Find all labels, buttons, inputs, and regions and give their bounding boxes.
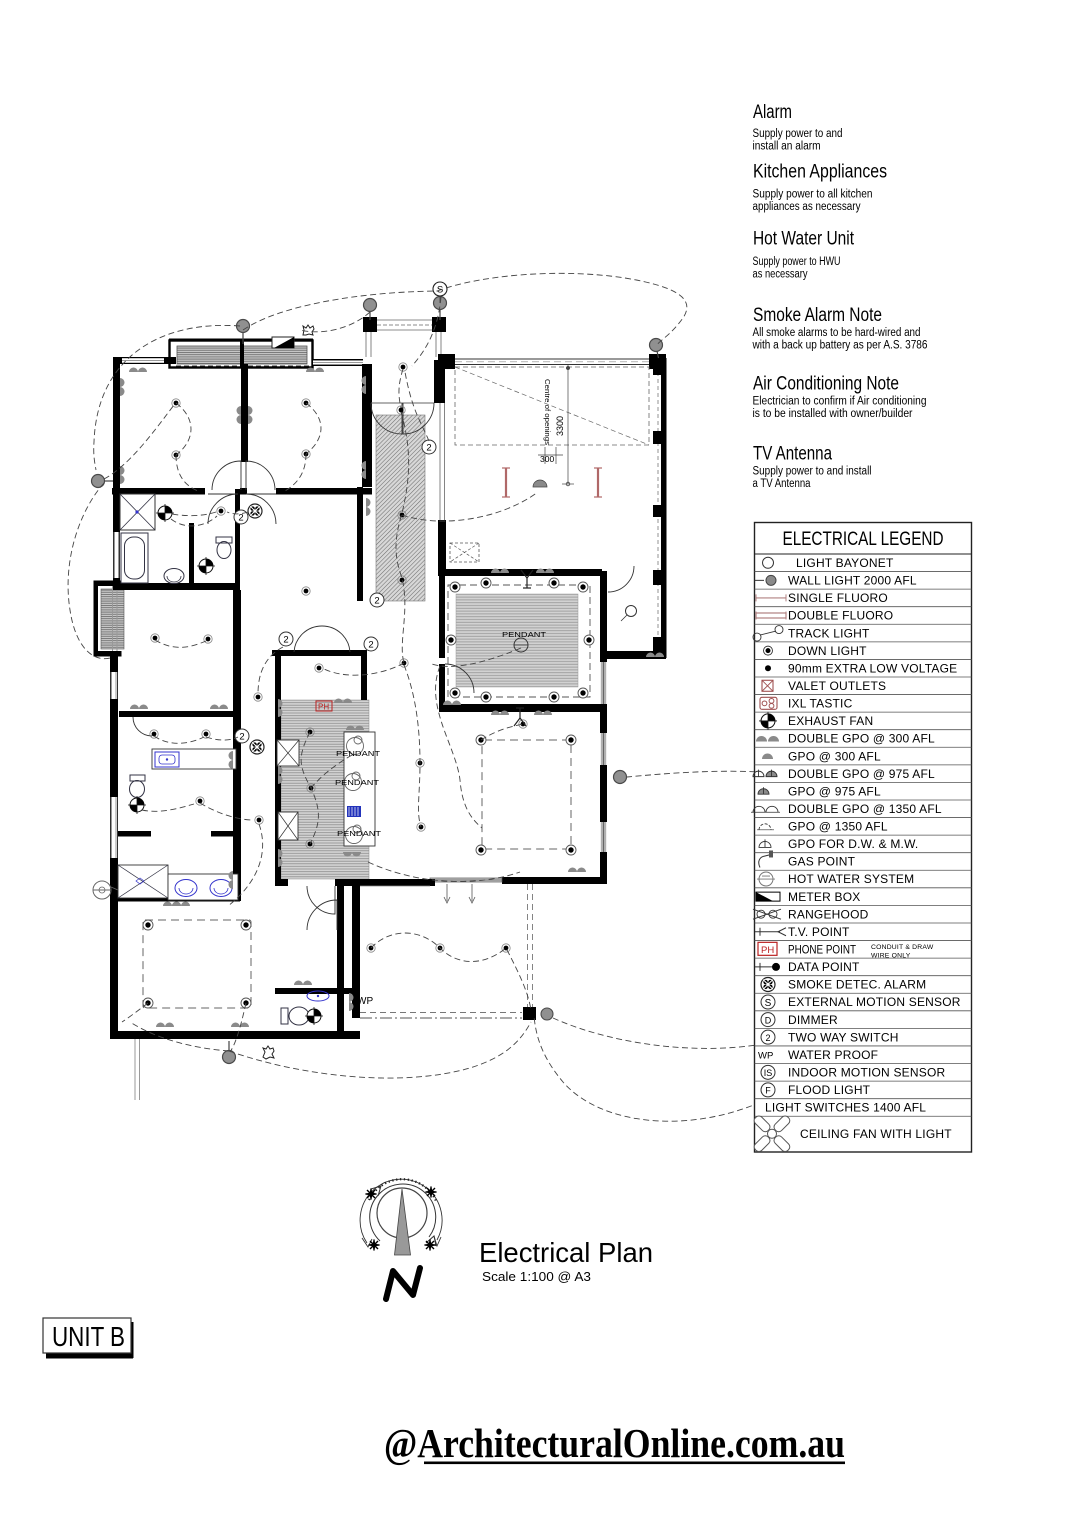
svg-text:Hot Water Unit: Hot Water Unit [753,229,855,250]
svg-text:2: 2 [765,1033,770,1043]
svg-text:IS: IS [764,1068,773,1078]
svg-text:@ArchitecturalOnline.com.au: @ArchitecturalOnline.com.au [384,1420,845,1466]
svg-text:PH: PH [318,703,329,712]
svg-text:3300: 3300 [555,416,565,436]
svg-text:All smoke alarms to be hard-wi: All smoke alarms to be hard-wired and [753,327,921,339]
svg-text:Smoke Alarm Note: Smoke Alarm Note [753,305,882,326]
svg-text:METER BOX: METER BOX [788,890,860,904]
svg-text:Supply power to and: Supply power to and [753,128,843,140]
svg-text:DOUBLE GPO @ 975 AFL: DOUBLE GPO @ 975 AFL [788,767,935,781]
svg-text:GAS POINT: GAS POINT [788,855,856,869]
svg-text:Supply power to all kitchen: Supply power to all kitchen [753,189,873,201]
svg-text:PENDANT: PENDANT [336,749,381,758]
svg-text:CEILING FAN WITH LIGHT: CEILING FAN WITH LIGHT [800,1127,952,1141]
svg-text:DATA POINT: DATA POINT [788,960,860,974]
svg-text:CONDUIT & DRAW: CONDUIT & DRAW [871,944,934,951]
svg-text:INDOOR MOTION SENSOR: INDOOR MOTION SENSOR [788,1066,945,1080]
svg-text:Kitchen Appliances: Kitchen Appliances [753,162,887,183]
svg-text:Air Conditioning Note: Air Conditioning Note [753,374,899,395]
svg-text:DIMMER: DIMMER [788,1013,838,1027]
svg-text:appliances as necessary: appliances as necessary [753,201,861,213]
svg-text:90mm EXTRA LOW VOLTAGE: 90mm EXTRA LOW VOLTAGE [788,661,957,675]
svg-text:Supply power to HWU: Supply power to HWU [753,256,841,268]
svg-text:Supply power to and install: Supply power to and install [753,466,872,478]
svg-text:F: F [765,1086,771,1096]
svg-text:ELECTRICAL LEGEND: ELECTRICAL LEGEND [783,528,944,550]
svg-text:WP: WP [758,1051,773,1062]
svg-text:FLOOD LIGHT: FLOOD LIGHT [788,1083,871,1097]
svg-text:UNIT B: UNIT B [52,1321,125,1352]
svg-text:DOUBLE GPO @ 1350 AFL: DOUBLE GPO @ 1350 AFL [788,802,942,816]
svg-text:S: S [765,998,772,1009]
svg-text:LIGHT BAYONET: LIGHT BAYONET [796,556,894,570]
svg-text:DOUBLE FLUORO: DOUBLE FLUORO [788,609,893,623]
svg-text:D: D [765,1015,772,1025]
svg-text:WIRE ONLY: WIRE ONLY [871,952,911,959]
svg-text:T.V. POINT: T.V. POINT [788,925,850,939]
svg-text:DOUBLE GPO @ 300 AFL: DOUBLE GPO @ 300 AFL [788,732,935,746]
svg-text:Electrician to confirm if Air: Electrician to confirm if Air conditioni… [753,396,927,408]
svg-text:EXHAUST FAN: EXHAUST FAN [788,714,873,728]
svg-text:SMOKE DETEC. ALARM: SMOKE DETEC. ALARM [788,978,926,992]
svg-text:300: 300 [540,454,554,464]
svg-text:VALET OUTLETS: VALET OUTLETS [788,679,886,693]
svg-text:TRACK LIGHT: TRACK LIGHT [788,626,870,640]
svg-text:WP: WP [357,996,373,1007]
svg-text:IXL TASTIC: IXL TASTIC [788,697,853,711]
svg-text:SINGLE FLUORO: SINGLE FLUORO [788,591,888,605]
svg-text:RANGEHOOD: RANGEHOOD [788,907,869,921]
svg-text:install an alarm: install an alarm [753,141,821,153]
svg-text:PHONE POINT: PHONE POINT [788,943,857,957]
svg-text:Scale 1:100 @ A3: Scale 1:100 @ A3 [482,1269,591,1284]
svg-text:GPO FOR D.W. & M.W.: GPO FOR D.W. & M.W. [788,837,918,851]
svg-text:EXTERNAL MOTION SENSOR: EXTERNAL MOTION SENSOR [788,995,961,1009]
svg-text:as necessary: as necessary [753,269,808,281]
svg-text:PENDANT: PENDANT [335,778,380,787]
svg-text:GPO @ 975 AFL: GPO @ 975 AFL [788,784,881,798]
svg-text:WALL LIGHT 2000 AFL: WALL LIGHT 2000 AFL [788,574,917,588]
svg-text:PENDANT: PENDANT [337,829,382,838]
svg-text:Alarm: Alarm [753,102,792,123]
svg-text:Electrical Plan: Electrical Plan [479,1237,653,1268]
svg-text:PH: PH [761,945,774,956]
svg-text:a TV Antenna: a TV Antenna [753,478,812,490]
svg-text:HOT WATER SYSTEM: HOT WATER SYSTEM [788,872,914,886]
svg-text:PENDANT: PENDANT [502,630,547,639]
svg-text:Centre of openings: Centre of openings [543,379,552,445]
svg-text:DOWN LIGHT: DOWN LIGHT [788,644,867,658]
svg-text:with a back up battery as per: with a back up battery as per A.S. 3786 [752,340,928,352]
svg-text:is to be installed with owner/: is to be installed with owner/builder [753,408,913,420]
svg-text:GPO @ 300 AFL: GPO @ 300 AFL [788,749,881,763]
svg-text:GPO @ 1350 AFL: GPO @ 1350 AFL [788,820,888,834]
svg-text:TWO WAY SWITCH: TWO WAY SWITCH [788,1030,899,1044]
svg-text:WATER PROOF: WATER PROOF [788,1048,878,1062]
svg-text:LIGHT SWITCHES 1400 AFL: LIGHT SWITCHES 1400 AFL [765,1101,926,1115]
svg-text:TV Antenna: TV Antenna [753,444,832,465]
